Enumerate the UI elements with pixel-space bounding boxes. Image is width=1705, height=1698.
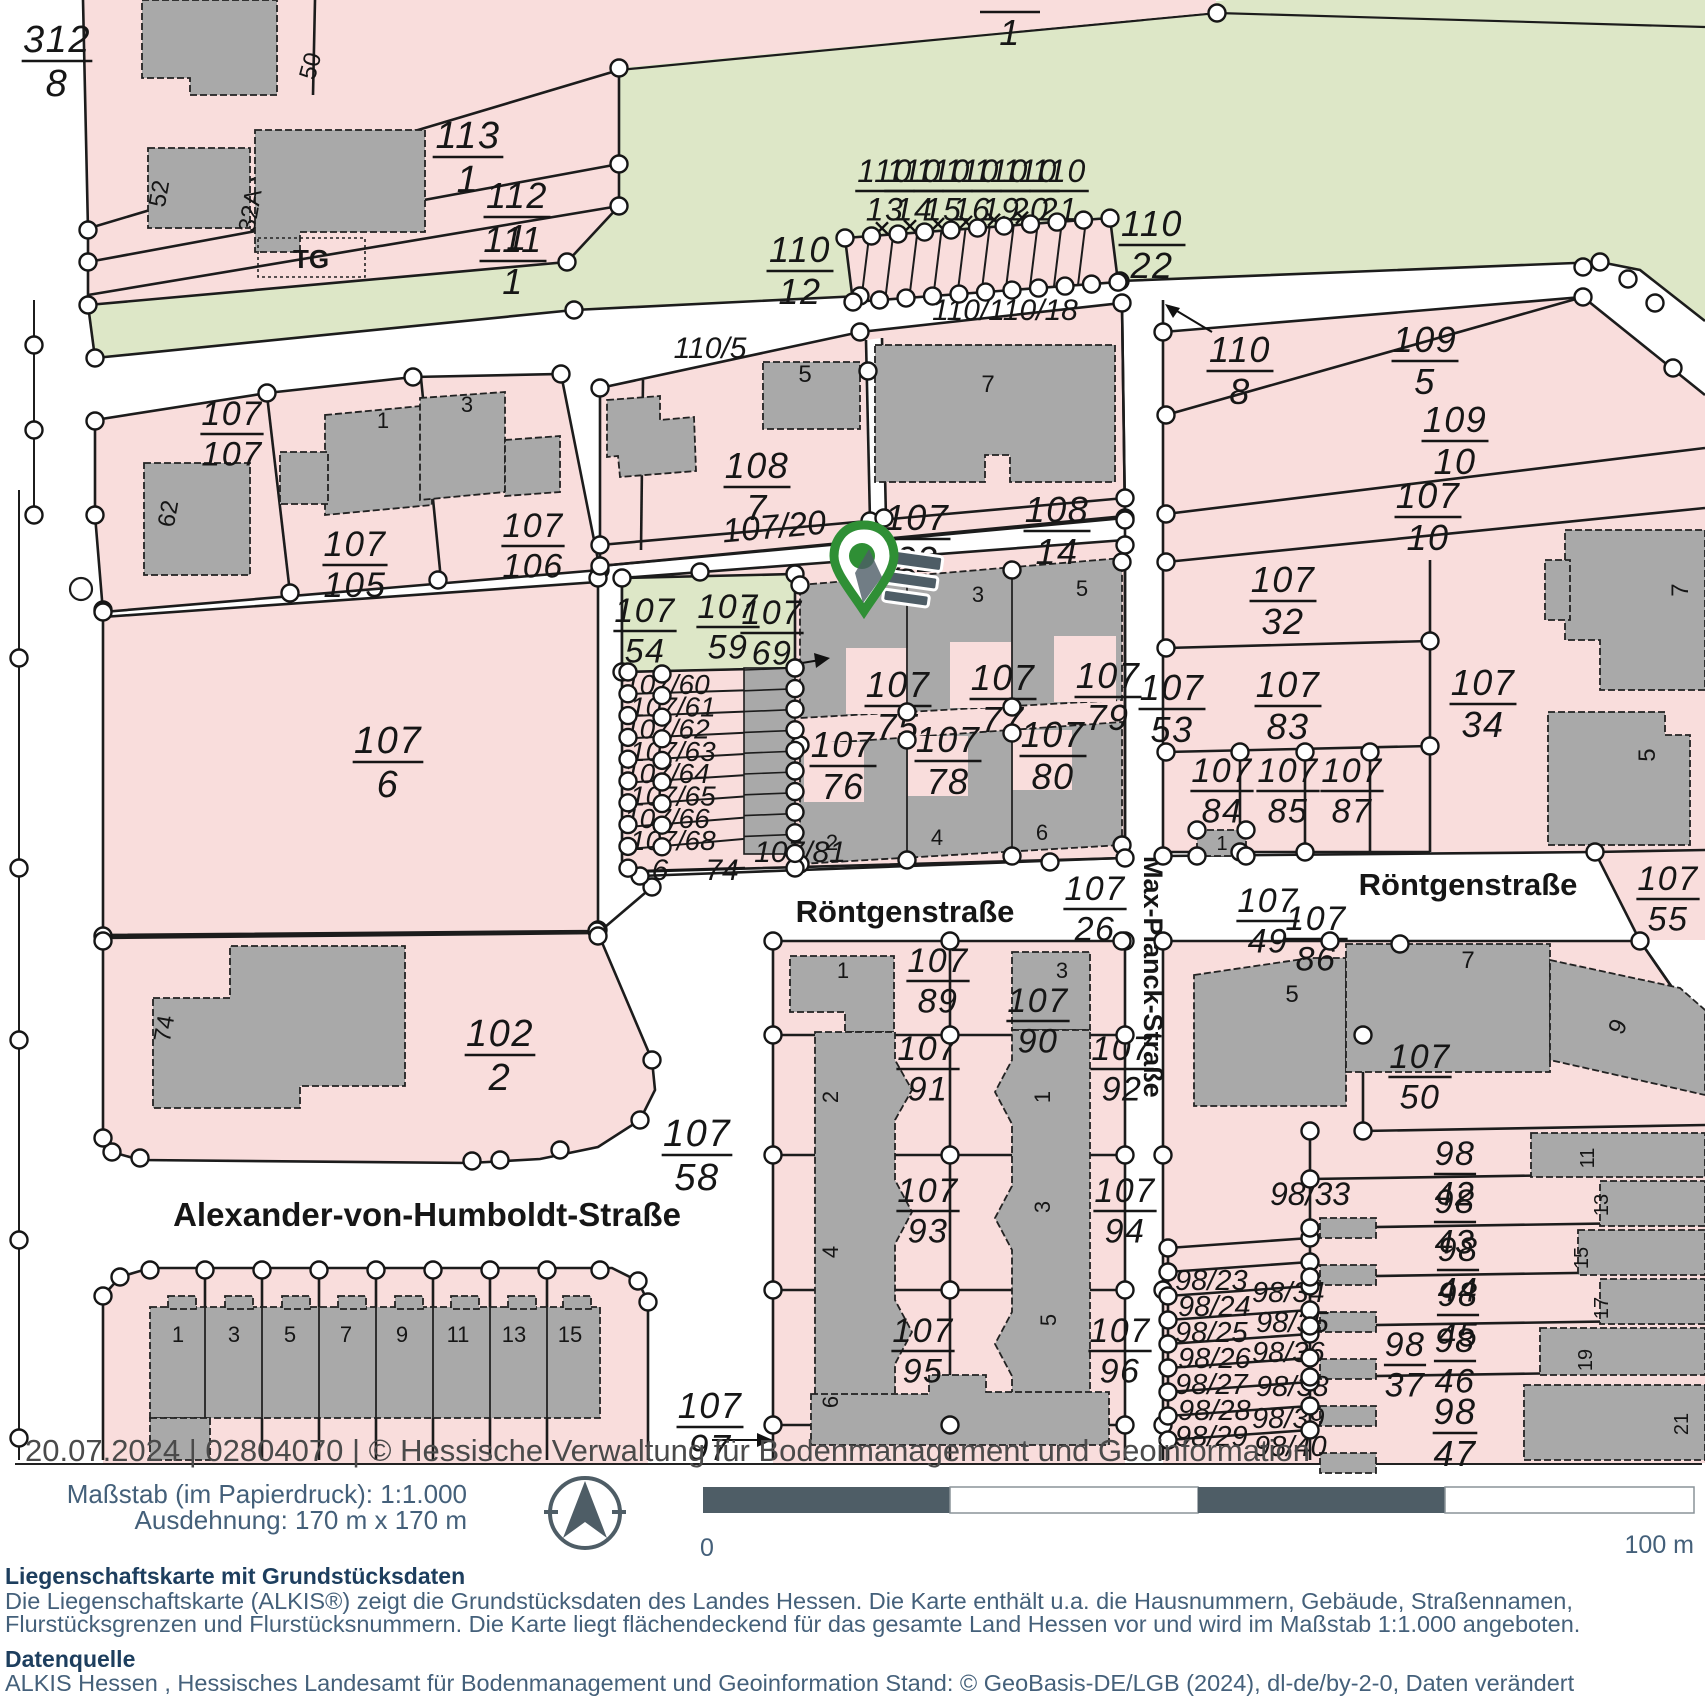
svg-text:102: 102 [466,1013,534,1055]
svg-text:8: 8 [46,63,69,105]
svg-text:107: 107 [1064,870,1125,908]
svg-text:Ausdehnung: 170 m x 170 m: Ausdehnung: 170 m x 170 m [135,1505,467,1535]
svg-text:26: 26 [1074,910,1116,948]
svg-text:12: 12 [778,271,821,312]
svg-text:50: 50 [1400,1078,1441,1116]
svg-text:98: 98 [1435,1183,1476,1221]
svg-text:10: 10 [1406,517,1449,558]
svg-text:3: 3 [1056,958,1068,983]
svg-text:2: 2 [818,1091,843,1103]
svg-text:93: 93 [908,1212,949,1250]
svg-text:1: 1 [999,12,1021,53]
svg-text:107: 107 [1089,1312,1150,1350]
svg-text:110: 110 [1031,153,1087,189]
svg-text:Röntgenstraße: Röntgenstraße [796,894,1015,929]
svg-text:110/5: 110/5 [674,332,747,365]
svg-text:3: 3 [1030,1201,1055,1213]
svg-text:107: 107 [1285,900,1346,938]
svg-text:89: 89 [918,982,959,1020]
svg-text:5: 5 [1285,981,1298,1008]
svg-text:107: 107 [1451,662,1516,703]
svg-text:98: 98 [1435,1322,1476,1360]
svg-text:Liegenschaftskarte mit Grundst: Liegenschaftskarte mit Grundstücksdaten [5,1563,465,1589]
svg-text:Max-Planck-Straße: Max-Planck-Straße [1138,856,1168,1098]
svg-text:5: 5 [284,1322,296,1347]
svg-text:105: 105 [324,566,387,605]
svg-text:107: 107 [201,395,262,433]
svg-text:100 m: 100 m [1625,1531,1694,1559]
svg-text:53: 53 [1150,709,1193,750]
svg-text:Datenquelle: Datenquelle [5,1646,135,1672]
svg-text:76: 76 [821,766,864,807]
svg-text:11: 11 [447,1322,470,1347]
svg-text:1: 1 [377,408,389,433]
svg-text:6: 6 [377,764,400,806]
svg-text:7: 7 [1461,947,1474,974]
svg-text:13: 13 [502,1322,526,1347]
svg-text:98: 98 [1438,1231,1479,1269]
svg-text:15: 15 [558,1322,582,1347]
svg-text:107: 107 [502,507,563,545]
svg-text:62: 62 [153,498,184,529]
svg-text:107: 107 [1007,982,1068,1020]
svg-text:5: 5 [1036,1314,1061,1326]
svg-text:49: 49 [1248,922,1289,960]
svg-text:107: 107 [1140,667,1205,708]
svg-text:107: 107 [1094,1172,1155,1210]
svg-text:98: 98 [1385,1326,1426,1364]
svg-text:84: 84 [1202,792,1243,830]
svg-text:ALKIS Hessen , Hessisches Land: ALKIS Hessen , Hessisches Landesamt für … [5,1670,1575,1696]
svg-text:98: 98 [1438,1276,1479,1314]
svg-text:4: 4 [931,825,943,850]
svg-text:1: 1 [1030,1091,1055,1103]
svg-text:107: 107 [1251,559,1316,600]
svg-text:83: 83 [1266,706,1309,747]
svg-text:107: 107 [614,592,675,630]
svg-text:55: 55 [1648,900,1689,938]
svg-text:107: 107 [354,720,422,762]
svg-text:7: 7 [1667,583,1694,596]
svg-text:107: 107 [1076,655,1141,696]
svg-text:5: 5 [798,361,811,388]
svg-text:0: 0 [700,1534,714,1562]
svg-text:1: 1 [172,1322,184,1347]
svg-text:109: 109 [1423,399,1488,440]
svg-text:34: 34 [1461,704,1504,745]
svg-text:Röntgenstraße: Röntgenstraße [1359,867,1578,902]
svg-text:Alexander-von-Humboldt-Straße: Alexander-von-Humboldt-Straße [173,1196,681,1233]
svg-text:107: 107 [907,942,968,980]
svg-text:85: 85 [1268,792,1309,830]
svg-text:3: 3 [972,582,984,607]
svg-text:22: 22 [1129,245,1173,286]
svg-text:98: 98 [1435,1135,1476,1173]
svg-text:111: 111 [483,219,542,260]
svg-text:107: 107 [811,724,876,765]
svg-text:6: 6 [818,1396,843,1408]
svg-text:107: 107 [663,1113,731,1155]
svg-text:6: 6 [1036,820,1048,845]
svg-text:80: 80 [1031,756,1074,797]
svg-text:19: 19 [1575,1349,1597,1371]
svg-text:107: 107 [866,664,931,705]
svg-text:96: 96 [1100,1352,1141,1390]
svg-text:2: 2 [488,1057,512,1099]
svg-text:107: 107 [1256,664,1321,705]
svg-text:312: 312 [23,19,91,61]
svg-text:37: 37 [1385,1366,1426,1404]
svg-text:5: 5 [1414,361,1436,402]
svg-text:107: 107 [741,594,802,632]
svg-text:13: 13 [1591,1194,1613,1216]
svg-text:3: 3 [461,392,473,417]
svg-text:107: 107 [324,525,387,564]
svg-text:107: 107 [1389,1038,1450,1076]
svg-text:107: 107 [201,435,262,473]
svg-text:106: 106 [502,547,563,585]
svg-text:5: 5 [1634,748,1661,761]
svg-text:15: 15 [1571,1247,1593,1269]
svg-text:91: 91 [908,1070,949,1108]
svg-text:52: 52 [144,178,175,209]
svg-text:108: 108 [725,445,790,486]
svg-text:112: 112 [486,175,548,216]
svg-text:21: 21 [1671,1413,1693,1435]
svg-text:58: 58 [674,1157,719,1199]
svg-text:107: 107 [1396,475,1461,516]
svg-text:98: 98 [1433,1391,1476,1432]
svg-text:107: 107 [1021,714,1086,755]
svg-text:7: 7 [981,371,994,398]
svg-text:11: 11 [1577,1148,1599,1169]
svg-text:92: 92 [1102,1070,1143,1108]
svg-text:107: 107 [892,1312,953,1350]
svg-text:4: 4 [818,1246,843,1258]
svg-text:107: 107 [971,657,1036,698]
svg-text:17: 17 [1591,1297,1613,1319]
svg-text:9: 9 [396,1322,408,1347]
svg-text:TG: TG [293,244,329,274]
svg-text:107: 107 [1637,860,1698,898]
svg-text:78: 78 [926,761,969,802]
svg-text:113: 113 [435,115,500,157]
svg-text:1: 1 [1216,833,1227,855]
svg-text:74: 74 [149,1013,180,1044]
svg-text:107: 107 [897,1172,958,1210]
svg-text:90: 90 [1018,1022,1059,1060]
svg-text:108: 108 [1025,489,1090,530]
svg-text:109: 109 [1393,319,1458,360]
svg-text:47: 47 [1433,1433,1477,1474]
svg-text:95: 95 [903,1352,944,1390]
svg-text:79: 79 [1086,697,1129,738]
svg-text:94: 94 [1105,1212,1146,1250]
svg-text:110: 110 [1121,203,1183,244]
svg-text:Flurstücksgrenzen und Flurstüc: Flurstücksgrenzen und Flurstücksnummern.… [5,1611,1580,1637]
svg-text:7: 7 [340,1322,352,1347]
svg-text:5: 5 [1076,576,1088,601]
svg-text:14: 14 [1035,531,1078,572]
svg-text:32: 32 [1261,601,1304,642]
svg-text:2: 2 [826,830,838,855]
svg-text:74: 74 [705,854,738,887]
svg-text:110: 110 [1209,329,1271,370]
svg-text:3: 3 [228,1322,240,1347]
svg-text:107: 107 [885,497,950,538]
svg-text:8: 8 [1229,371,1251,412]
svg-text:1: 1 [837,958,849,983]
svg-text:87: 87 [1332,792,1373,830]
svg-text:107: 107 [678,1385,743,1426]
svg-text:20.07.2024 | 02804070 | © Hess: 20.07.2024 | 02804070 | © Hessische Verw… [25,1433,1310,1468]
svg-text:110: 110 [769,229,831,270]
svg-text:107: 107 [916,719,981,760]
svg-text:107/68: 107/68 [630,825,716,856]
svg-text:1: 1 [502,261,524,302]
svg-text:1: 1 [457,159,480,201]
